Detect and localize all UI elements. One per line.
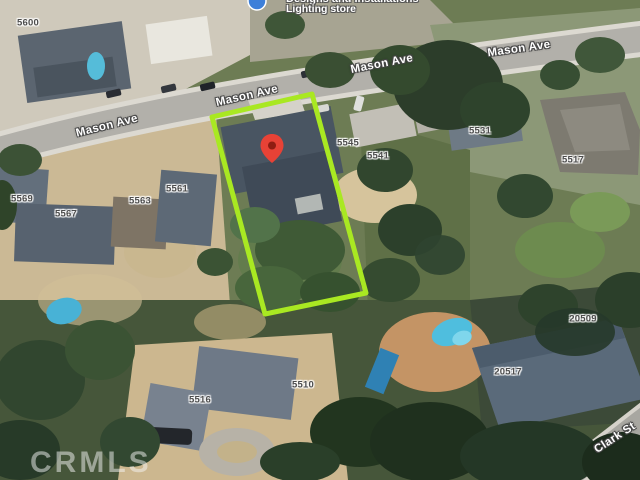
- address-label-5600: 5600: [17, 18, 39, 29]
- map-viewport[interactable]: Designs and Installations Lighting store…: [0, 0, 640, 480]
- address-label-5545: 5545: [337, 138, 359, 149]
- address-label-5569: 5569: [11, 194, 33, 205]
- address-label-5531: 5531: [469, 126, 491, 137]
- address-label-5516: 5516: [189, 395, 211, 406]
- address-label-5567: 5567: [55, 209, 77, 220]
- address-label-5561: 5561: [166, 184, 188, 195]
- address-label-20509: 20509: [569, 314, 596, 325]
- address-label-5510: 5510: [292, 380, 314, 391]
- poi-category-label[interactable]: Lighting store: [286, 4, 356, 15]
- crmls-watermark: CRMLS: [30, 446, 152, 480]
- address-label-20517: 20517: [494, 367, 521, 378]
- address-label-5541: 5541: [367, 151, 389, 162]
- address-label-5517: 5517: [562, 155, 584, 166]
- satellite-basemap: [0, 0, 640, 480]
- address-label-5563: 5563: [129, 196, 151, 207]
